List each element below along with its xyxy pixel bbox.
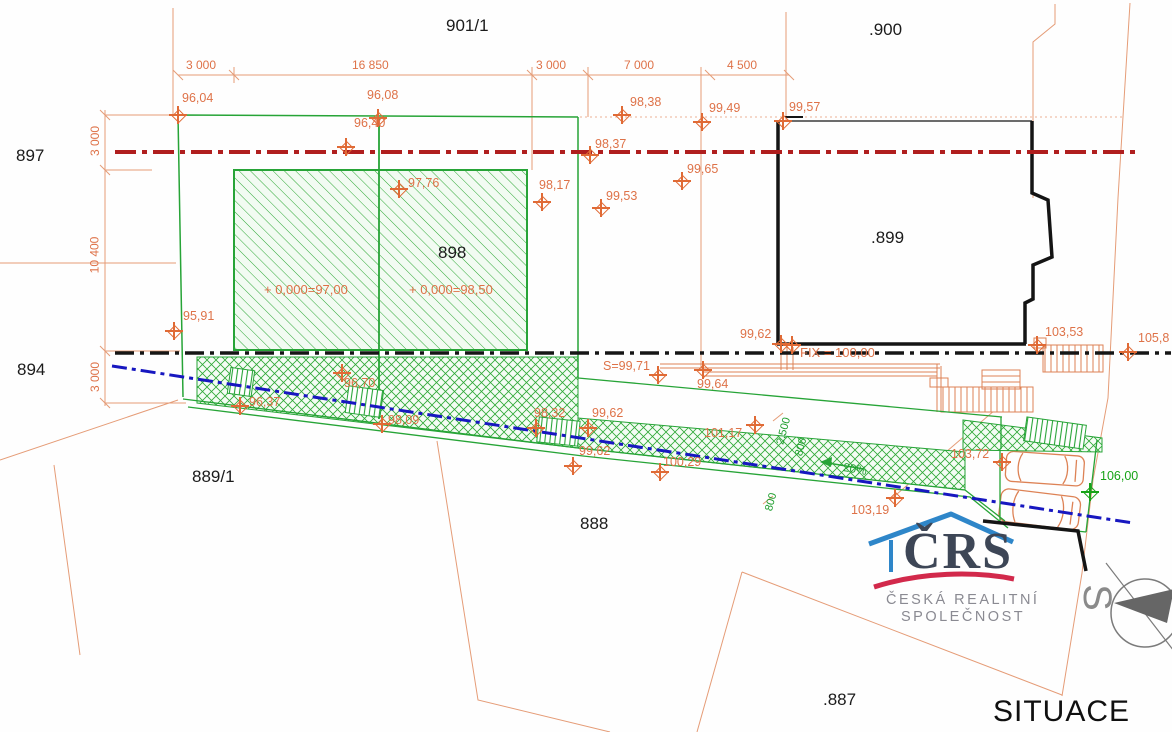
new-parcel-outline [178,115,1102,532]
elevation-point-marker [564,457,582,475]
elevation-point-label: 101,17 [704,426,742,440]
elevation-point-marker [390,180,408,198]
elevation-point-label: 98,32 [534,406,565,420]
parcel-label: .899 [871,228,904,248]
elevation-point-label: 99,57 [789,100,820,114]
parcel-label: .887 [823,690,856,710]
logo-company-line2: SPOLEČNOST [901,609,1025,625]
site-plan-canvas: SITUACE S ČRS ČESKÁ REALITNÍ SPOLEČNOST … [0,0,1172,732]
elevation-point-label: 103,72 [951,447,989,461]
elevation-point-label: 99,62 [592,406,623,420]
elevation-point-label: 106,00 [1100,469,1138,483]
elevation-point-label: 99,65 [687,162,718,176]
elevation-point-label: 97,76 [408,176,439,190]
parcel-label: .900 [869,20,902,40]
dimension-label: 10 400 [87,237,101,274]
annotation-label: + 0,000=97,00 [264,282,348,297]
elevation-point-label: 96,08 [367,88,398,102]
parcel-label: 888 [580,514,608,534]
logo-name: ČRS [903,522,1013,581]
parcel-label: 894 [17,360,45,380]
elevation-point-label: 96,04 [182,91,213,105]
elevation-point-label: 98,17 [539,178,570,192]
elevation-point-marker [579,419,597,437]
elevation-point-label: 95,91 [183,309,214,323]
elevation-point-marker [231,397,249,415]
elevation-point-label: 99,49 [709,101,740,115]
dimension-label: 3 000 [88,362,102,392]
north-label: S [1074,584,1119,611]
elevation-point-label: 99,53 [606,189,637,203]
elevation-point-label: 96,40 [354,116,385,130]
elevation-point-label: 98,37 [595,137,626,151]
logo-company-line1: ČESKÁ REALITNÍ [886,592,1039,608]
parcel-label: 889/1 [192,467,235,487]
elevation-point-label: 98,38 [630,95,661,109]
elevation-point-marker [993,453,1011,471]
dimension-label: 3 000 [88,126,102,156]
car-top [1005,451,1085,486]
elevation-point-marker [783,336,801,354]
elevation-point-label: 103,53 [1045,325,1083,339]
north-arrow [1106,563,1172,664]
elevation-point-label: 96,37 [249,395,280,409]
elevation-point-marker [693,113,711,131]
elevation-point-marker [169,106,187,124]
elevation-point-marker [613,106,631,124]
elevation-point-label: 98,09 [388,413,419,427]
dimension-label: 7 000 [624,58,654,72]
elevation-point-marker [1119,343,1137,361]
elevation-point-label: 100,29 [663,455,701,469]
elevation-point-marker [774,112,792,130]
elevation-point-label: 99,62 [740,327,771,341]
elevation-point-label: 105,8 [1138,331,1169,345]
elevation-point-marker [527,419,545,437]
annotation-label: + 0,000=98,50 [409,282,493,297]
elevation-point-label: 99,62 [579,444,610,458]
elevation-point-marker [337,138,355,156]
elevation-point-marker [1028,336,1046,354]
page-title: SITUACE [993,695,1130,729]
elevation-point-marker [533,193,551,211]
elevation-point-marker [1081,483,1099,501]
elevation-point-marker [649,366,667,384]
parcel-label: 898 [438,243,466,263]
elevation-point-label: S=99,71 [603,359,650,373]
dimension-label: 4 500 [727,58,757,72]
dimension-label: 3 000 [186,58,216,72]
elevation-point-label: 96,70 [344,376,375,390]
elevation-point-marker [165,322,183,340]
elevation-point-marker [746,416,764,434]
annotation-label: FIX = 100,00 [800,345,875,360]
elevation-point-label: 103,19 [851,503,889,517]
parcel-label: 901/1 [446,16,489,36]
dimension-label: 16 850 [352,58,389,72]
parcel-label: 897 [16,146,44,166]
proposed-building-898 [234,170,527,350]
dimension-label: 3 000 [536,58,566,72]
elevation-point-label: 99,64 [697,377,728,391]
